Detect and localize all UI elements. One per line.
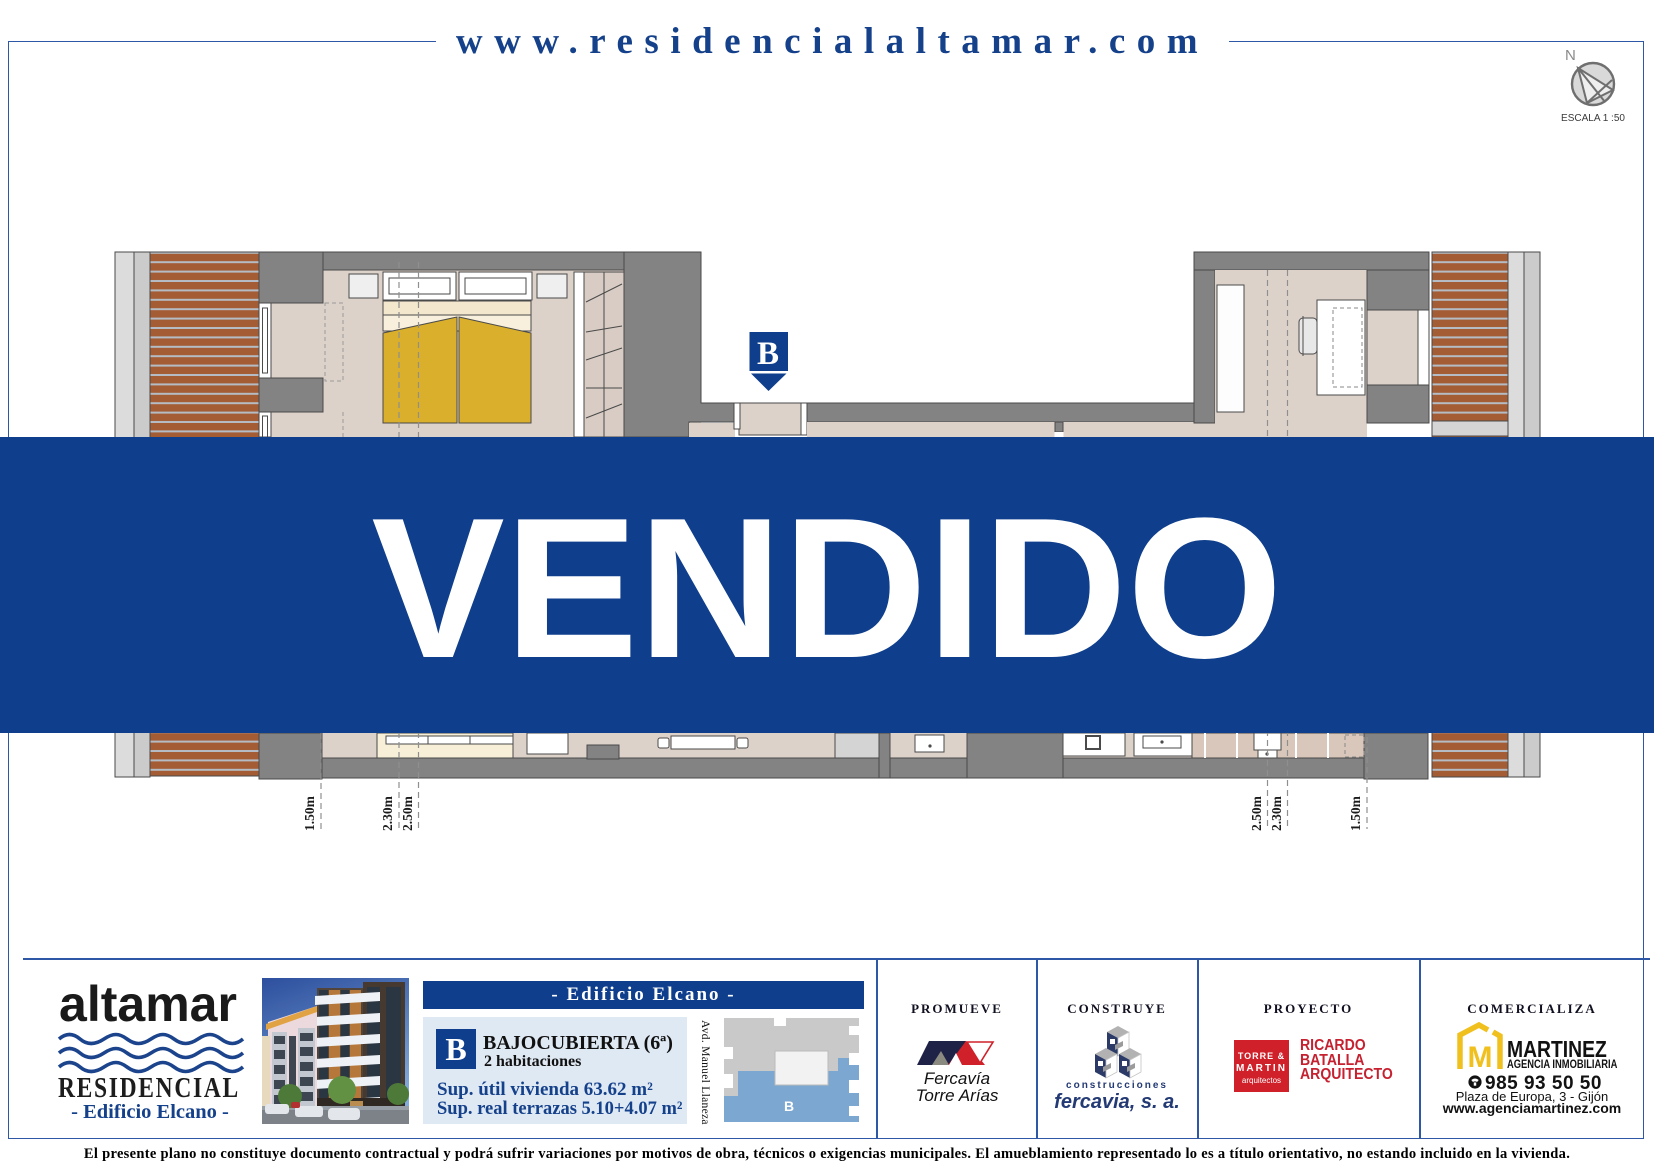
svg-text:M: M	[1468, 1041, 1493, 1069]
svg-text:B: B	[757, 336, 779, 372]
svg-text:B: B	[784, 1098, 794, 1114]
